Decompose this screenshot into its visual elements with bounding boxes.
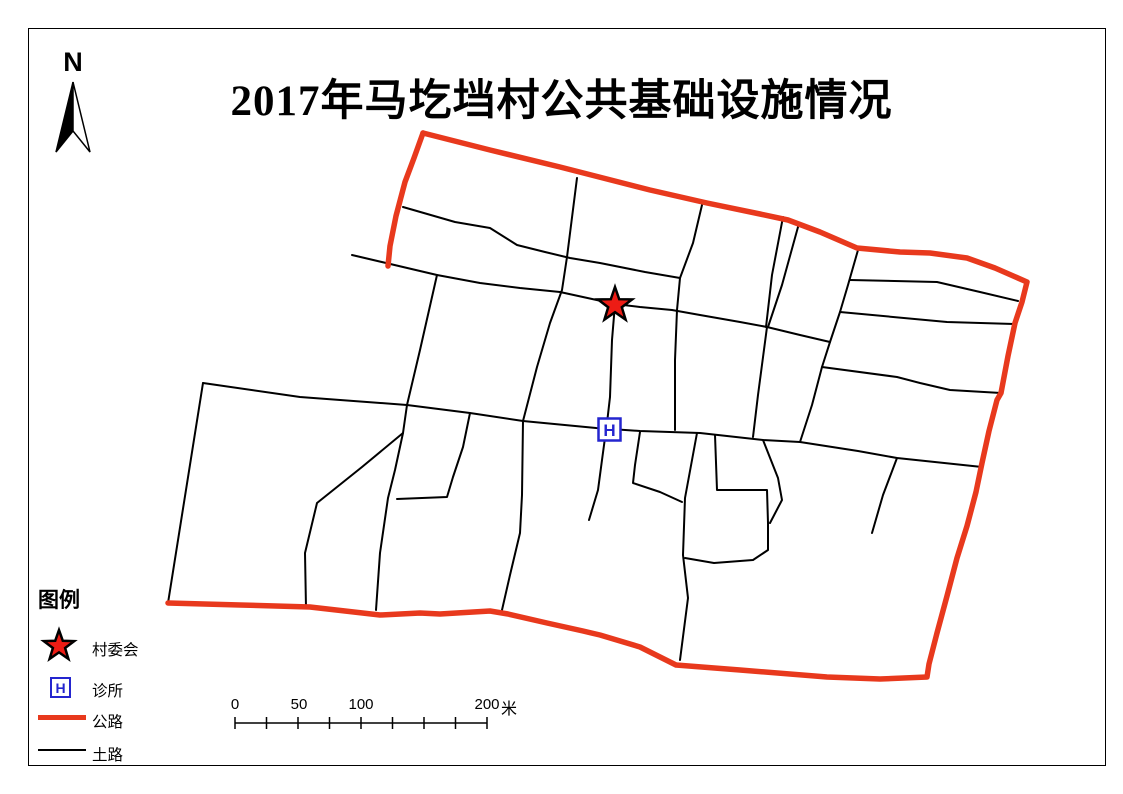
- clinic-marker: H: [599, 419, 621, 441]
- map-page: 2017年马圪垱村公共基础设施情况 N: [0, 0, 1123, 794]
- legend-label-clinic: 诊所: [92, 679, 123, 701]
- highway-roads: [168, 133, 1027, 679]
- legend-highway-line-icon: [38, 715, 86, 720]
- scale-label-50: 50: [291, 696, 308, 713]
- north-arrow-icon: [56, 82, 90, 152]
- village-map: H: [0, 0, 1123, 794]
- clinic-marker-letter: H: [603, 421, 615, 440]
- scale-label-200: 200: [474, 696, 499, 713]
- legend-label-dirt: 土路: [92, 743, 123, 765]
- scale-label-100: 100: [348, 696, 373, 713]
- legend-committee-star-icon: [37, 626, 81, 664]
- legend-label-highway: 公路: [92, 710, 123, 732]
- scale-unit: 米: [501, 695, 517, 719]
- scale-label-0: 0: [231, 696, 239, 713]
- legend-label-committee: 村委会: [92, 638, 139, 660]
- legend-dirt-line-icon: [38, 749, 86, 751]
- legend-clinic-icon: H: [50, 677, 71, 698]
- scalebar-ticks: [235, 717, 487, 729]
- legend-title: 图例: [38, 584, 80, 614]
